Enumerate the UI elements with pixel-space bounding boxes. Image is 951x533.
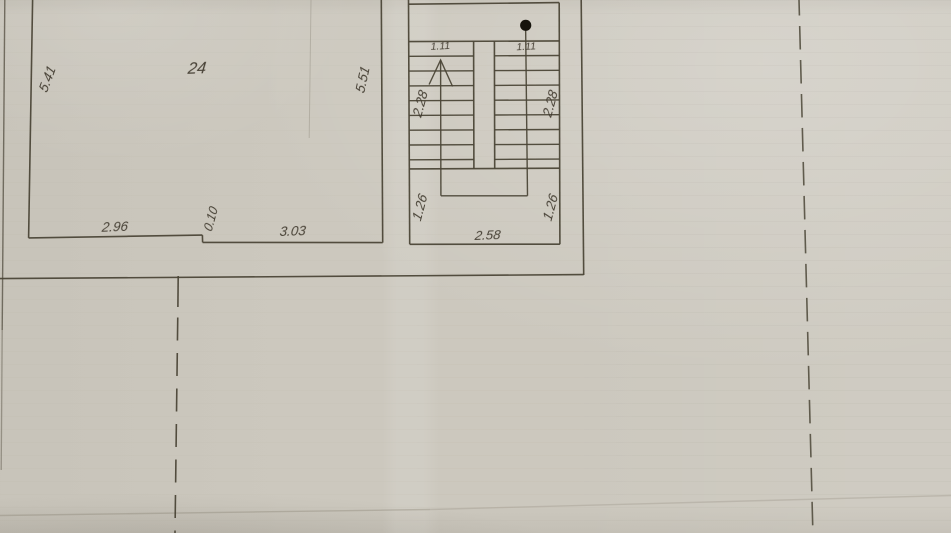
- svg-text:1.26: 1.26: [410, 191, 431, 223]
- svg-text:3.03: 3.03: [279, 223, 307, 239]
- svg-text:5.51: 5.51: [353, 64, 373, 95]
- svg-text:1.11: 1.11: [516, 41, 536, 53]
- svg-text:24: 24: [186, 58, 207, 78]
- svg-text:2.58: 2.58: [473, 227, 502, 243]
- svg-text:1.11: 1.11: [430, 41, 450, 53]
- svg-text:2.96: 2.96: [100, 219, 129, 235]
- svg-text:5.41: 5.41: [36, 63, 58, 95]
- svg-text:0.10: 0.10: [201, 204, 220, 233]
- svg-text:1.26: 1.26: [540, 191, 561, 223]
